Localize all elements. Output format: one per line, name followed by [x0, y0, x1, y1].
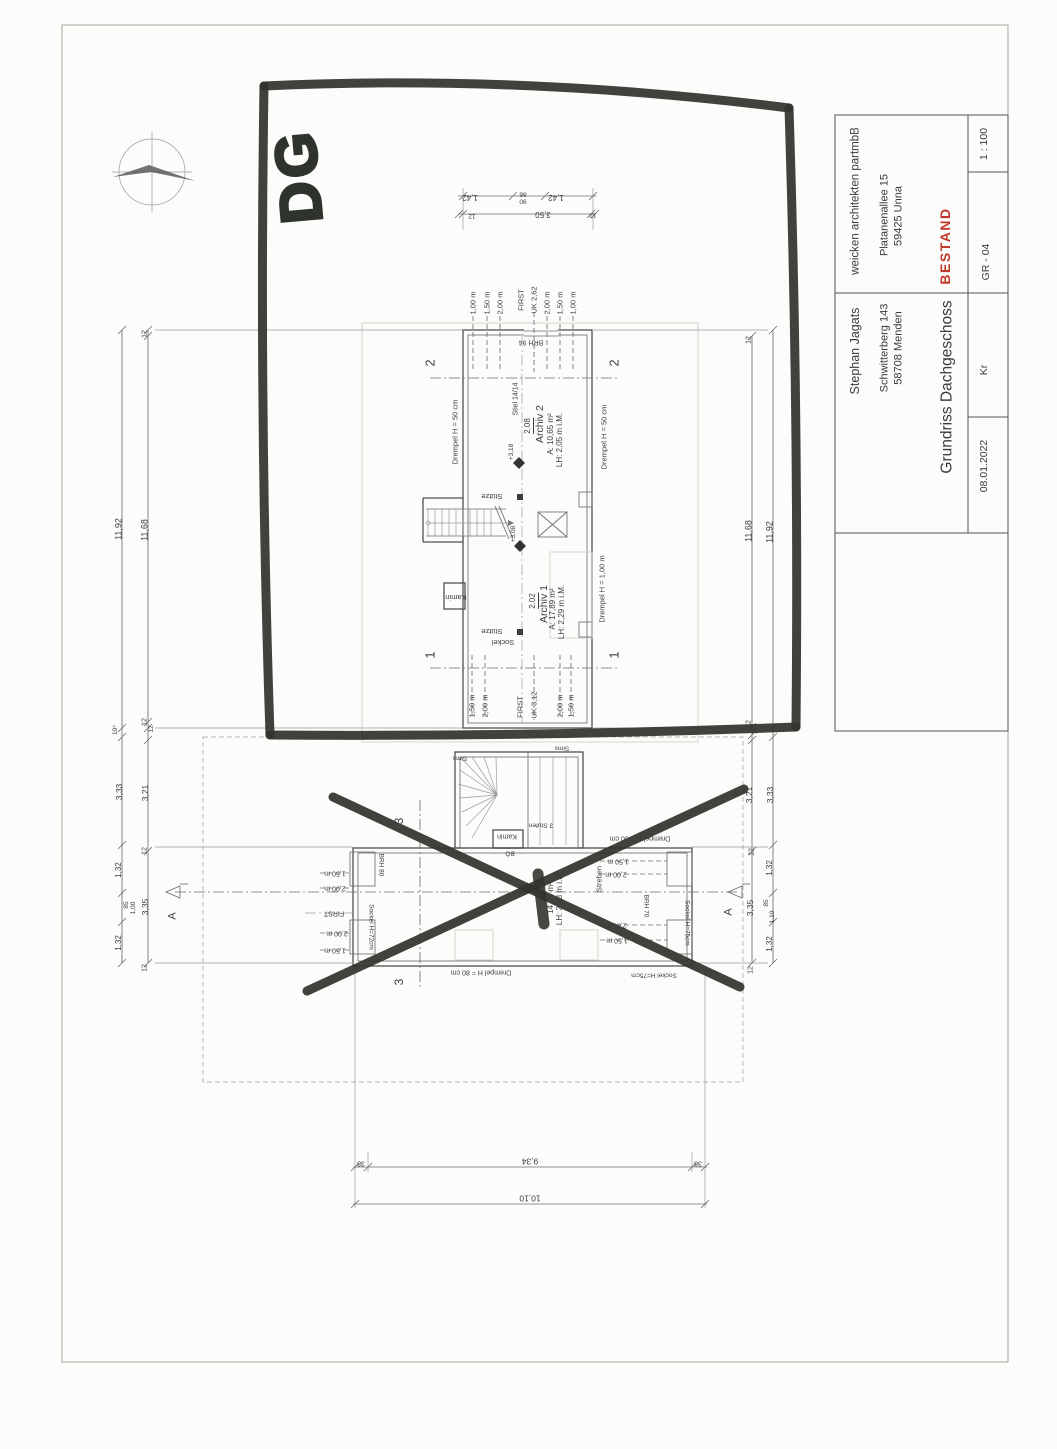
level-label: +3,08	[511, 526, 518, 542]
first-label: FIRST	[324, 910, 344, 917]
drempel-label: Drempel H = 50 cm	[451, 400, 459, 465]
section-marker-label: A	[168, 912, 179, 919]
brh-label: BRH 80	[377, 854, 384, 877]
sims-label: Sims	[453, 754, 467, 761]
height-line-label: 2,00 m	[481, 695, 489, 718]
sockel-label: Sockel H=75cm	[683, 900, 690, 946]
height-line-label: 2,00 m	[556, 695, 564, 718]
height-line-label: 1,50 m	[607, 858, 628, 865]
dim-label: 11,68	[745, 520, 754, 542]
dim-label: 9,34	[522, 1157, 539, 1166]
section-marker-label: 2	[608, 359, 621, 366]
height-line-label: 2,00 m	[326, 930, 347, 937]
streben-label: Streben	[595, 866, 603, 892]
dim-label: 12	[142, 847, 149, 855]
dim-label: 11,92	[115, 518, 124, 540]
room-height: LH: 2,08 m i.M.	[556, 871, 564, 925]
stiel-label: Stiel 14/14	[513, 382, 520, 415]
plan-labels-layer: 1,00 m1,50 m2,00 mFIRSTUK 2,622,00 m1,50…	[0, 0, 1057, 1449]
dim-label: 12	[589, 211, 596, 218]
dim-label: 10,10	[519, 1194, 540, 1203]
stufen-label: 3 Stufen	[529, 821, 553, 828]
dim-label: 12	[748, 966, 755, 974]
section-marker-label: 1	[424, 651, 437, 658]
sockel-label: Sockel H=72cm	[367, 904, 374, 950]
dim-label: 12	[753, 727, 760, 734]
dim-label: 3,50	[535, 210, 551, 218]
height-line-label: 1,50 m	[567, 695, 575, 718]
section-marker-label: 3	[393, 818, 405, 825]
dg-marker-text: DG	[266, 126, 332, 226]
first-label: FIRST	[516, 696, 524, 718]
height-line-label: 1,50 m	[468, 695, 476, 718]
dim-label: 12	[142, 964, 149, 972]
height-line-label: 1,50 m	[483, 292, 491, 315]
height-line-label: 1,00 m	[469, 292, 477, 315]
dim-label: 11,68	[141, 519, 150, 541]
dim-label: 12	[749, 848, 756, 856]
dim-label: 38	[357, 1160, 365, 1167]
drempel-label: Drempel H = 1,00 m	[598, 555, 606, 622]
dim-label: 90	[519, 197, 526, 204]
section-marker-label: 2	[424, 359, 437, 366]
dim-label: 3,21	[141, 785, 150, 802]
height-line-label: 1,00 m	[569, 292, 577, 315]
dim-label: 3,21	[745, 787, 754, 804]
sockel-label: Sockel H=75cm	[631, 971, 677, 978]
height-line-label: 2,00 m	[543, 292, 551, 315]
drempel-label: Drempel H = 50 cm	[600, 405, 608, 470]
dim-label: 10⁵	[113, 725, 120, 735]
dim-label: 3,35	[141, 899, 150, 916]
room-height: LH: 2,05 m i.M.	[556, 413, 564, 467]
dim-label: 86	[519, 190, 526, 197]
stuetze-label: Stütze	[481, 627, 502, 635]
kamin-label: Kamin	[445, 593, 466, 601]
dim-label: 1,42	[462, 193, 478, 201]
brh-label: BRH 94	[519, 339, 544, 346]
section-marker-label: A	[724, 908, 735, 915]
dim-label: 3,35	[746, 900, 755, 917]
dim-label: 1,32	[115, 935, 123, 951]
dim-label: 1,32	[115, 862, 123, 878]
brh-label: BRH 70	[642, 895, 649, 918]
sockel-label: Sockel	[492, 638, 515, 646]
height-line-label: 1,50 m	[324, 947, 345, 954]
boe-label: BÖ	[505, 849, 514, 856]
dim-label: 1,32	[766, 860, 774, 876]
height-line-label: 2,00 m	[496, 292, 504, 315]
drempel-label: Drempel H = 80 cm	[610, 835, 671, 842]
section-marker-label: 3	[393, 979, 405, 986]
height-line-label: 1,50 m	[324, 870, 345, 877]
dim-label: 11,92	[766, 521, 775, 543]
scanned-plan-sheet: weicken architekten partmbB Platanenalle…	[0, 0, 1057, 1449]
height-line-label: 1,50 m	[606, 937, 627, 944]
drempel-label: Drempel H = 80 cm	[451, 969, 512, 976]
dim-label: 12	[746, 336, 753, 344]
height-line-label: 2,00 m	[605, 871, 626, 878]
dim-label: 12	[142, 330, 149, 338]
dim-label: 12	[468, 212, 475, 219]
sims-label: Sims	[555, 744, 569, 751]
room-height: LH: 2,29 m i.M.	[558, 585, 566, 639]
room-area: A: 17,89 m²	[549, 588, 557, 629]
section-marker-label: 1	[608, 651, 621, 658]
room-number: 2.08	[524, 418, 534, 434]
uk-label: UK 3,12	[530, 691, 538, 718]
dim-label: 1,32	[766, 936, 774, 952]
uk-label: UK 2,62	[530, 286, 538, 313]
height-line-label: 2,00 m	[324, 885, 345, 892]
height-line-label: 2,00 m	[605, 922, 626, 929]
kamin-label: Kamin	[497, 833, 517, 840]
dim-label: 1,00	[131, 902, 138, 915]
room-area: 14,74 m²	[547, 882, 555, 914]
room-name: Archiv 2	[535, 405, 546, 443]
dim-label: 1,42	[548, 193, 564, 201]
room-area: A: 10,65 m²	[547, 413, 555, 454]
stuetze-label: Stütze	[481, 492, 502, 500]
dim-label: 38	[694, 1160, 702, 1167]
dim-label: 12	[149, 725, 156, 732]
first-label: FIRST	[517, 289, 525, 311]
dim-label: 3,33	[766, 787, 775, 804]
dim-label: 3,33	[115, 784, 124, 801]
dim-label: 1,10	[770, 911, 777, 924]
dim-label: 85	[764, 899, 771, 906]
height-line-label: 1,50 m	[556, 292, 564, 315]
level-label: +3,18	[509, 444, 516, 460]
